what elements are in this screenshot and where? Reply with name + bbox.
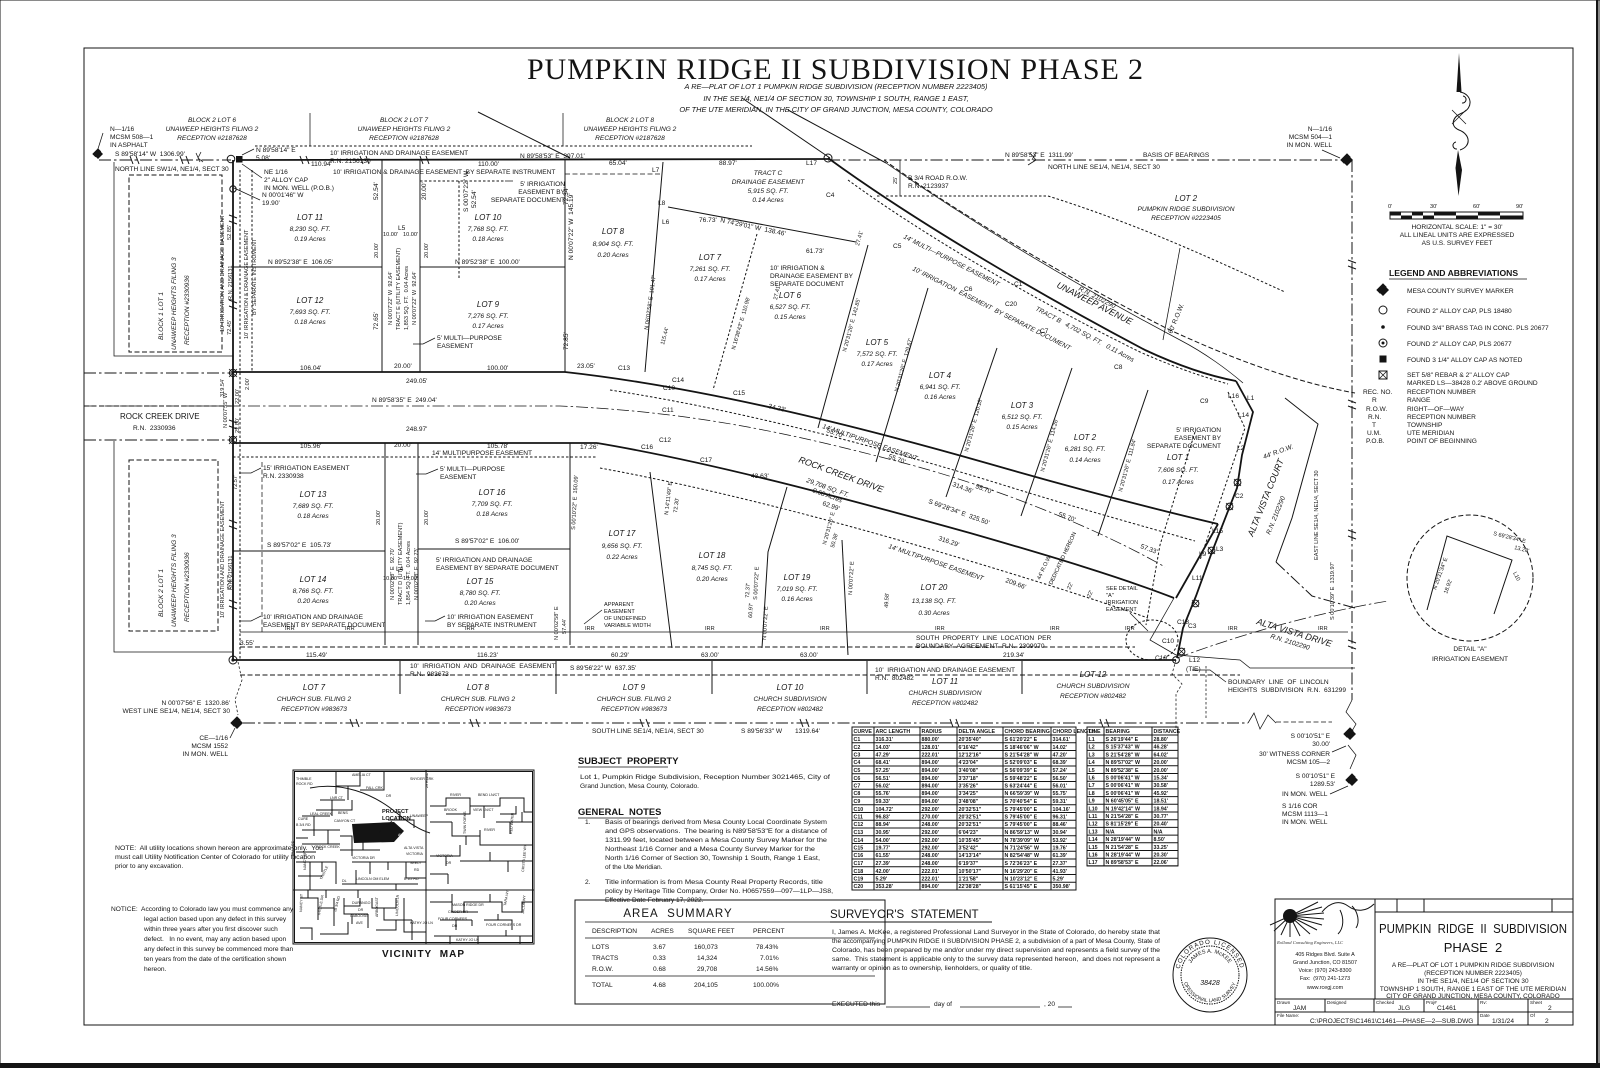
svg-text:C1': C1'	[1014, 281, 1024, 288]
svg-text:RECEPTION #2330936: RECEPTION #2330936	[184, 275, 191, 345]
svg-text:TRACTS: TRACTS	[592, 955, 619, 962]
svg-text:N 60'45'05" E: N 60'45'05" E	[1106, 799, 1139, 805]
svg-text:C9: C9	[1200, 398, 1209, 405]
svg-text:N 00'02'58" E 92.73': N 00'02'58" E 92.73'	[414, 548, 420, 600]
svg-text:SET 5/8" REBAR & 2" ALLOY CAP: SET 5/8" REBAR & 2" ALLOY CAP	[1407, 372, 1510, 379]
svg-text:BOUNDARY AGREEMENT R.N. 230: BOUNDARY AGREEMENT R.N. 2309070	[916, 643, 1045, 650]
svg-text:L8: L8	[658, 200, 666, 207]
svg-text:14' MULTIPURPOSE EASEMENT: 14' MULTIPURPOSE EASEMENT	[821, 423, 919, 463]
svg-text:1311.99 feet, located between: 1311.99 feet, located between a Mesa Cou…	[605, 837, 827, 844]
svg-text:S 00'06'41" W: S 00'06'41" W	[1106, 783, 1140, 789]
svg-text:56.02': 56.02'	[876, 784, 891, 790]
svg-text:222.01': 222.01'	[922, 753, 939, 759]
svg-text:IN MON. WELL: IN MON. WELL	[1282, 791, 1328, 798]
svg-text:L6: L6	[1089, 776, 1095, 782]
svg-text:5' IRRIGATION: 5' IRRIGATION	[520, 181, 565, 188]
svg-text:14'13'14": 14'13'14"	[959, 853, 982, 859]
svg-text:R.N.: R.N.	[1368, 414, 1381, 421]
svg-text:61.55': 61.55'	[876, 853, 891, 859]
svg-text:C4: C4	[826, 192, 835, 199]
svg-text:ALTA V: ALTA V	[398, 833, 410, 837]
svg-text:314.61': 314.61'	[1053, 737, 1070, 743]
svg-text:96.83': 96.83'	[876, 815, 891, 821]
svg-text:S 00'07'22" W: S 00'07'22" W	[463, 170, 470, 212]
svg-text:14' MULTIPURPOSE EASEMENT: 14' MULTIPURPOSE EASEMENT	[887, 543, 985, 583]
svg-text:Rv:: Rv:	[1480, 1000, 1487, 1005]
svg-text:0.30 Acres: 0.30 Acres	[918, 610, 950, 617]
svg-text:LOT 2: LOT 2	[1074, 433, 1097, 442]
svg-text:BLOCK 2 LOT 1: BLOCK 2 LOT 1	[158, 569, 165, 617]
svg-text:LOT 8: LOT 8	[467, 683, 490, 692]
svg-text:0': 0'	[1388, 204, 1392, 210]
svg-text:L5: L5	[1089, 768, 1095, 774]
svg-text:42.00': 42.00'	[876, 869, 891, 875]
svg-text:LOT 8: LOT 8	[602, 227, 625, 236]
svg-text:8,766 SQ. FT.: 8,766 SQ. FT.	[293, 588, 334, 595]
svg-text:RECEPTION #2223405: RECEPTION #2223405	[1151, 215, 1221, 222]
svg-text:10.00': 10.00'	[383, 232, 398, 238]
svg-text:C18: C18	[854, 869, 864, 875]
svg-text:19.77': 19.77'	[876, 846, 891, 852]
svg-text:10.00': 10.00'	[403, 576, 418, 582]
svg-text:legal action based upon any de: legal action based upon any defect in th…	[144, 916, 287, 923]
svg-text:18.92': 18.92'	[1443, 578, 1454, 594]
svg-text:C14: C14	[672, 377, 684, 384]
svg-text:C1461: C1461	[1437, 1005, 1457, 1012]
svg-text:LOT 2: LOT 2	[1175, 194, 1198, 203]
svg-text:CHURCH SUB. FILING 2: CHURCH SUB. FILING 2	[597, 696, 672, 703]
svg-text:S 15'37'43" W: S 15'37'43" W	[1106, 745, 1140, 751]
svg-text:A RE—PLAT OF LOT 1 PUMPKIN RID: A RE—PLAT OF LOT 1 PUMPKIN RIDGE SUBDIVI…	[684, 82, 988, 91]
svg-text:353.28': 353.28'	[876, 884, 893, 890]
svg-text:292.00': 292.00'	[922, 838, 939, 844]
svg-text:2" ALLOY CAP: 2" ALLOY CAP	[264, 177, 309, 184]
svg-text:RIVER: RIVER	[484, 828, 495, 832]
svg-text:59.31': 59.31'	[1053, 799, 1068, 805]
svg-text:L1: L1	[1089, 737, 1095, 743]
svg-text:TOWNSHIP: TOWNSHIP	[1407, 422, 1443, 429]
svg-text:UNAWEEP HEIGHTS FILING 3: UNAWEEP HEIGHTS FILING 3	[171, 534, 178, 627]
svg-text:IRR: IRR	[345, 626, 355, 632]
svg-text:7,709 SQ. FT.: 7,709 SQ. FT.	[472, 501, 513, 508]
svg-text:0.68: 0.68	[653, 966, 666, 973]
svg-text:61.39': 61.39'	[1053, 853, 1068, 859]
svg-text:7.01%: 7.01%	[760, 955, 779, 962]
svg-text:N 78'39'09" W: N 78'39'09" W	[1005, 838, 1039, 844]
svg-text:S 89'56'22" W 637.35': S 89'56'22" W 637.35'	[570, 665, 636, 672]
svg-text:IN THE SE1/4, NE1/4 OF SECTION: IN THE SE1/4, NE1/4 OF SECTION 30	[1417, 978, 1528, 985]
svg-text:N 00'02'58" E: N 00'02'58" E	[554, 606, 560, 640]
svg-text:L10: L10	[1511, 571, 1521, 582]
svg-text:IRR: IRR	[465, 626, 475, 632]
svg-text:IRR: IRR	[1125, 626, 1135, 632]
svg-text:TWIN FORKS: TWIN FORKS	[463, 811, 467, 834]
svg-text:IRR: IRR	[820, 626, 830, 632]
svg-text:S 1/16 COR: S 1/16 COR	[1282, 803, 1318, 810]
svg-text:N 89'58'53" E 1311.99': N 89'58'53" E 1311.99'	[1005, 152, 1073, 159]
svg-text:72.30': 72.30'	[673, 498, 681, 514]
svg-text:N 89'52'38" E: N 89'52'38" E	[1106, 768, 1139, 774]
svg-text:RECEPTION #802482: RECEPTION #802482	[912, 700, 978, 707]
svg-text:N 89'57'02" W: N 89'57'02" W	[1106, 760, 1140, 766]
svg-text:12'12'16": 12'12'16"	[959, 753, 982, 759]
svg-text:110.00': 110.00'	[478, 161, 499, 168]
svg-text:0.18 Acres: 0.18 Acres	[294, 319, 326, 326]
svg-text:3'40'08": 3'40'08"	[959, 768, 979, 774]
svg-text:1'21'58": 1'21'58"	[959, 877, 979, 883]
svg-text:6,941 SQ. FT.: 6,941 SQ. FT.	[920, 384, 961, 391]
svg-text:N 82'54'48" W: N 82'54'48" W	[1005, 853, 1039, 859]
svg-text:S 61'20'22" E: S 61'20'22" E	[1005, 737, 1038, 743]
svg-text:DEDICATED HEREON: DEDICATED HEREON	[1048, 531, 1078, 586]
svg-text:B 1/2 RD: B 1/2 RD	[404, 877, 419, 881]
svg-text:VICTORIA: VICTORIA	[406, 852, 424, 856]
svg-text:SOUTH LINE SE1/4, NE1/4, SECT: SOUTH LINE SE1/4, NE1/4, SECT 30	[592, 728, 704, 735]
svg-text:IN MON. WELL: IN MON. WELL	[1287, 142, 1333, 149]
svg-text:N/A: N/A	[1106, 829, 1115, 835]
svg-text:AREA SUMMARY: AREA SUMMARY	[623, 908, 732, 920]
svg-text:LOT 9: LOT 9	[477, 300, 500, 309]
svg-text:10' IRRIGATION &: 10' IRRIGATION &	[770, 265, 825, 272]
svg-text:27.37': 27.37'	[1053, 861, 1068, 867]
svg-text:L2: L2	[1089, 745, 1095, 751]
svg-text:DL: DL	[342, 879, 347, 883]
svg-text:HEIGHTS SUBDIVISION R.N. 63: HEIGHTS SUBDIVISION R.N. 631299	[1228, 687, 1346, 694]
svg-text:C14: C14	[854, 838, 864, 844]
svg-text:6,281 SQ. FT.: 6,281 SQ. FT.	[1065, 446, 1106, 453]
svg-text:EASEMENT: EASEMENT	[1106, 607, 1137, 613]
svg-text:GENERAL NOTES: GENERAL NOTES	[578, 806, 661, 817]
svg-text:RECEPTION #983673: RECEPTION #983673	[281, 706, 347, 713]
svg-text:C11: C11	[662, 407, 674, 414]
svg-text:C7: C7	[854, 784, 861, 790]
svg-text:MARKED LS—38428 0.2' ABOVE GRO: MARKED LS—38428 0.2' ABOVE GROUND	[1407, 380, 1538, 387]
svg-text:FOUR CORNERS DR: FOUR CORNERS DR	[486, 923, 522, 927]
svg-text:(TIE): (TIE)	[1186, 666, 1201, 673]
svg-text:45.92': 45.92'	[1154, 791, 1169, 797]
svg-text:20.00': 20.00'	[424, 510, 430, 525]
svg-text:www.rcegj.com: www.rcegj.com	[1306, 985, 1344, 991]
svg-text:15' IRRIGATION EASEMENT: 15' IRRIGATION EASEMENT	[263, 465, 350, 472]
svg-text:BEARING: BEARING	[1106, 729, 1130, 735]
svg-text:DELTA ANGLE: DELTA ANGLE	[959, 729, 996, 735]
svg-text:BROOK: BROOK	[444, 808, 458, 812]
svg-text:59.33': 59.33'	[876, 799, 891, 805]
svg-text:20.00': 20.00'	[394, 442, 412, 449]
svg-text:20.00': 20.00'	[1154, 768, 1169, 774]
svg-text:MCSM 1552: MCSM 1552	[191, 743, 228, 750]
svg-text:5' IRRIGATION AND DRAINAGE: 5' IRRIGATION AND DRAINAGE	[436, 557, 533, 564]
svg-text:MESA COUNTY SURVEY MARKER: MESA COUNTY SURVEY MARKER	[1407, 288, 1514, 295]
svg-text:20.00': 20.00'	[374, 243, 380, 258]
svg-text:894.00': 894.00'	[922, 768, 939, 774]
svg-text:0.20 Acres: 0.20 Acres	[464, 600, 496, 607]
svg-text:6,527 SQ. FT.: 6,527 SQ. FT.	[770, 304, 811, 311]
svg-text:N 00'07'22" E: N 00'07'22" E	[762, 606, 770, 640]
svg-text:N 66'59'39" W: N 66'59'39" W	[1005, 791, 1039, 797]
svg-text:55.75': 55.75'	[1053, 791, 1068, 797]
svg-text:ten years from the date of the: ten years from the date of the certifica…	[144, 956, 287, 963]
svg-text:N 06'02'58" E 101.47': N 06'02'58" E 101.47'	[644, 275, 658, 330]
svg-text:Colorado, has been prepared by: Colorado, has been prepared by me and/or…	[832, 947, 1160, 954]
svg-text:47.20': 47.20'	[1053, 753, 1068, 759]
svg-text:68.39': 68.39'	[1053, 760, 1068, 766]
svg-text:30' WITNESS CORNER: 30' WITNESS CORNER	[1259, 751, 1330, 758]
svg-text:B 3/4 RD: B 3/4 RD	[296, 823, 311, 827]
svg-text:0.22 Acres: 0.22 Acres	[606, 554, 638, 561]
svg-text:Of: Of	[1530, 1013, 1536, 1018]
svg-text:FOUR CORNERS: FOUR CORNERS	[438, 917, 468, 921]
svg-text:33.25': 33.25'	[1154, 845, 1169, 851]
svg-text:19.90': 19.90'	[262, 200, 280, 207]
svg-text:EASEMENT BY: EASEMENT BY	[518, 189, 565, 196]
svg-text:LOTS: LOTS	[592, 944, 610, 951]
svg-text:Voice: (970) 243-8300: Voice: (970) 243-8300	[1298, 968, 1351, 974]
svg-text:LINE: LINE	[1089, 729, 1102, 735]
svg-text:North 1/16 Corner of Section 3: North 1/16 Corner of Section 30, Townshi…	[605, 855, 820, 862]
svg-text:5.29': 5.29'	[1053, 877, 1065, 883]
svg-text:55.70': 55.70'	[1057, 511, 1076, 524]
svg-text:C10: C10	[854, 807, 864, 813]
svg-text:29 ROAD: 29 ROAD	[425, 772, 429, 788]
svg-text:N 71'24'56" W: N 71'24'56" W	[1005, 846, 1039, 852]
svg-text:POINT OF BEGINNING: POINT OF BEGINNING	[1407, 438, 1477, 445]
svg-text:L5: L5	[398, 225, 406, 232]
svg-text:, 20: , 20	[1044, 1001, 1055, 1008]
svg-text:R.N. 802482: R.N. 802482	[875, 675, 914, 682]
svg-text:IRR: IRR	[285, 626, 295, 632]
svg-text:S 63'24'44" E: S 63'24'44" E	[1005, 784, 1038, 790]
svg-text:S 00'10'51" E: S 00'10'51" E	[1296, 773, 1336, 780]
svg-text:68.41': 68.41'	[876, 760, 891, 766]
svg-text:34.23': 34.23'	[768, 403, 787, 414]
svg-text:C10: C10	[663, 385, 675, 392]
svg-text:IRR: IRR	[1228, 626, 1238, 632]
svg-text:10' IRRIGATION AND DRAINAGE E: 10' IRRIGATION AND DRAINAGE EASEMENT	[875, 667, 1015, 674]
svg-text:314.36': 314.36'	[951, 481, 974, 495]
svg-text:CABOOSE: CABOOSE	[350, 914, 368, 918]
svg-text:104.16': 104.16'	[1053, 807, 1070, 813]
svg-text:DR: DR	[358, 908, 364, 912]
svg-text:N 89'58'53" E: N 89'58'53" E	[1106, 860, 1139, 866]
svg-text:350.98': 350.98'	[1053, 884, 1070, 890]
svg-text:L17: L17	[806, 160, 817, 167]
svg-text:L13: L13	[1089, 829, 1098, 835]
svg-text:PUMPKIN RIDGE II SUBDIVISIO: PUMPKIN RIDGE II SUBDIVISION	[1379, 921, 1567, 936]
svg-text:N 00'07'22" E: N 00'07'22" E	[848, 561, 856, 595]
svg-text:LOT 16: LOT 16	[479, 488, 506, 497]
svg-text:DISTANCE: DISTANCE	[1154, 729, 1181, 735]
svg-text:0.14 Acres: 0.14 Acres	[752, 197, 784, 204]
svg-text:LOT 13: LOT 13	[300, 490, 327, 499]
svg-text:NOTICE: According to Colorado: NOTICE: According to Colorado law you mu…	[111, 906, 294, 913]
svg-text:LOT 12: LOT 12	[1080, 670, 1107, 679]
svg-text:N 20'31'26" E 114.26': N 20'31'26" E 114.26'	[1040, 418, 1060, 472]
svg-text:ACRES: ACRES	[651, 928, 674, 935]
svg-text:S 18'46'06" W: S 18'46'06" W	[1005, 745, 1039, 751]
svg-text:C19: C19	[1155, 655, 1167, 662]
svg-text:Basis of bearings derived from: Basis of bearings derived from Mesa Coun…	[605, 819, 828, 826]
svg-text:NANCY ST: NANCY ST	[299, 893, 304, 912]
svg-text:7,572 SQ. FT.: 7,572 SQ. FT.	[857, 351, 898, 358]
svg-text:6,512 SQ. FT.: 6,512 SQ. FT.	[1002, 414, 1043, 421]
svg-text:CINDER DR: CINDER DR	[448, 910, 468, 914]
svg-text:C19: C19	[854, 877, 864, 883]
svg-text:8.50': 8.50'	[1154, 837, 1166, 843]
svg-text:1/31/24: 1/31/24	[1492, 1018, 1514, 1025]
svg-text:T: T	[1372, 422, 1376, 429]
svg-text:ALTA VISTA: ALTA VISTA	[404, 846, 424, 850]
svg-text:LOT 19: LOT 19	[784, 573, 811, 582]
svg-text:UTE MERIDIAN: UTE MERIDIAN	[1407, 430, 1454, 437]
svg-text:RANGE: RANGE	[1407, 397, 1431, 404]
svg-text:5' MULTI—PURPOSE: 5' MULTI—PURPOSE	[440, 466, 505, 473]
svg-text:Sheet: Sheet	[1530, 1000, 1543, 1005]
svg-text:405 Ridges Blvd. Suite A: 405 Ridges Blvd. Suite A	[1295, 952, 1355, 958]
svg-text:S 81'15'29" E: S 81'15'29" E	[1106, 822, 1139, 828]
svg-text:7,689 SQ. FT.: 7,689 SQ. FT.	[293, 503, 334, 510]
svg-text:N/A: N/A	[1154, 829, 1163, 835]
svg-text:55.70': 55.70'	[974, 483, 993, 496]
svg-text:57.24': 57.24'	[1053, 768, 1068, 774]
svg-text:20.40': 20.40'	[1154, 822, 1169, 828]
svg-text:Rolland Consulting Engineers,: Rolland Consulting Engineers, LLC	[1276, 940, 1344, 946]
svg-text:894.00': 894.00'	[922, 760, 939, 766]
svg-text:72.85': 72.85'	[563, 332, 570, 350]
svg-text:MCSM 105—2: MCSM 105—2	[1287, 759, 1331, 766]
svg-text:22.00': 22.00'	[235, 418, 241, 433]
svg-text:30.00': 30.00'	[1312, 741, 1330, 748]
svg-text:8,745 SQ. FT.: 8,745 SQ. FT.	[692, 565, 733, 572]
svg-text:S 00'10'39" E 1319.97': S 00'10'39" E 1319.97'	[1330, 562, 1336, 620]
svg-text:S 21'54'28" W: S 21'54'28" W	[1106, 752, 1140, 758]
svg-text:60' R.O.W.: 60' R.O.W.	[1167, 303, 1185, 335]
svg-text:IN MON. WELL (P.O.B.): IN MON. WELL (P.O.B.)	[264, 185, 334, 192]
svg-text:hereon.: hereon.	[144, 966, 167, 973]
svg-text:L4: L4	[1089, 760, 1095, 766]
svg-text:RECEPTION #983673: RECEPTION #983673	[445, 706, 511, 713]
svg-text:20.00': 20.00'	[424, 243, 430, 258]
svg-text:S 69'28'34" E 325.50': S 69'28'34" E 325.50'	[927, 498, 990, 527]
svg-text:894.00': 894.00'	[922, 791, 939, 797]
svg-text:TRACT D (UTILITY EASEMENT): TRACT D (UTILITY EASEMENT)	[398, 522, 404, 605]
svg-text:C9: C9	[854, 799, 861, 805]
svg-text:C2: C2	[854, 745, 861, 751]
svg-text:LNR CT: LNR CT	[330, 796, 344, 800]
svg-text:RECEPTION NUMBER: RECEPTION NUMBER	[1407, 389, 1476, 396]
svg-text:60': 60'	[1473, 204, 1480, 210]
svg-text:AS U.S. SURVEY FEET: AS U.S. SURVEY FEET	[1422, 240, 1493, 247]
svg-text:1,853 SQ. FT. 0.04 Acres: 1,853 SQ. FT. 0.04 Acres	[404, 266, 410, 330]
svg-text:C12: C12	[659, 437, 671, 444]
svg-text:EXECUTED this: EXECUTED this	[832, 1001, 881, 1008]
svg-text:S 79'45'00" E: S 79'45'00" E	[1005, 822, 1038, 828]
svg-text:LINCOLN OM ELEM: LINCOLN OM ELEM	[356, 877, 389, 881]
svg-text:N 20'31'26" E 129.67': N 20'31'26" E 129.67'	[894, 338, 914, 393]
svg-text:RIGHT—OF—WAY: RIGHT—OF—WAY	[1407, 406, 1465, 413]
svg-text:TRACT C: TRACT C	[754, 170, 783, 177]
svg-text:0.20 Acres: 0.20 Acres	[597, 252, 629, 259]
svg-text:LEAL CREEK: LEAL CREEK	[310, 812, 333, 816]
svg-text:38428: 38428	[1200, 980, 1220, 987]
svg-text:88.46': 88.46'	[1053, 822, 1068, 828]
svg-text:10.00': 10.00'	[383, 576, 398, 582]
svg-text:90': 90'	[1516, 204, 1523, 210]
svg-text:Grand Junction, CO 81507: Grand Junction, CO 81507	[1293, 960, 1357, 966]
svg-text:BLOCK 2 LOT 8: BLOCK 2 LOT 8	[606, 117, 654, 124]
svg-text:S 70'40'54" E: S 70'40'54" E	[1005, 799, 1038, 805]
svg-text:N 89'52'38" E 106.05': N 89'52'38" E 106.05'	[268, 259, 333, 266]
svg-text:C15: C15	[854, 846, 864, 852]
svg-text:R: R	[1372, 397, 1377, 404]
svg-text:CHURCH SUBDIVISION: CHURCH SUBDIVISION	[754, 696, 827, 703]
svg-text:the accompanying PUMPKIN RIDGE: the accompanying PUMPKIN RIDGE II SUBDIV…	[832, 938, 1160, 945]
svg-text:0.17 Acres: 0.17 Acres	[861, 361, 893, 368]
svg-text:0.19 Acres: 0.19 Acres	[294, 236, 326, 243]
svg-text:53.92': 53.92'	[1053, 838, 1068, 844]
svg-text:L16: L16	[1089, 853, 1098, 859]
svg-text:248.00': 248.00'	[922, 853, 939, 859]
svg-text:P.O.B.: P.O.B.	[1366, 438, 1385, 445]
svg-text:894.00': 894.00'	[922, 799, 939, 805]
svg-text:8,230 SQ. FT.: 8,230 SQ. FT.	[290, 226, 331, 233]
svg-text:292.00': 292.00'	[922, 807, 939, 813]
svg-text:3'34'25": 3'34'25"	[959, 791, 979, 797]
svg-text:FOUND 3 1/4" ALLOY CAP AS NOTE: FOUND 3 1/4" ALLOY CAP AS NOTED	[1407, 357, 1523, 364]
svg-text:30.58': 30.58'	[1154, 783, 1169, 789]
svg-text:JACOB WY: JACOB WY	[521, 894, 527, 914]
svg-text:defect. In no event, may any: defect. In no event, may any action base…	[144, 936, 287, 943]
svg-text:IRR: IRR	[1050, 626, 1060, 632]
svg-text:SEPARATE DOCUMENT: SEPARATE DOCUMENT	[491, 197, 565, 204]
svg-text:27.41': 27.41'	[855, 230, 865, 246]
svg-text:RECEPTION #2187628: RECEPTION #2187628	[369, 135, 439, 142]
svg-text:must call Utility Notification: must call Utility Notification Center of…	[115, 854, 315, 861]
svg-text:IN MON. WELL: IN MON. WELL	[1282, 819, 1328, 826]
svg-text:20.00': 20.00'	[421, 182, 428, 200]
svg-text:CHORD BEARING: CHORD BEARING	[1005, 729, 1050, 735]
svg-text:UNAWEEP HEIGHTS FILING 2: UNAWEEP HEIGHTS FILING 2	[584, 126, 677, 133]
svg-text:EAST LINE SE1/4, NE1/4, SECT 3: EAST LINE SE1/4, NE1/4, SECT 30	[1314, 470, 1320, 560]
svg-text:CHURCH SUBDIVISION: CHURCH SUBDIVISION	[909, 690, 982, 697]
svg-text:248.00': 248.00'	[922, 861, 939, 867]
svg-text:50.38': 50.38'	[830, 532, 840, 548]
svg-text:10' IRRIGATION AND DRAINAGE: 10' IRRIGATION AND DRAINAGE	[263, 614, 364, 621]
svg-text:56.51': 56.51'	[876, 776, 891, 782]
svg-text:OF THE UTE MERIDIAN, IN THE CI: OF THE UTE MERIDIAN, IN THE CITY OF GRAN…	[679, 105, 992, 114]
svg-text:THIMBLE: THIMBLE	[296, 777, 312, 781]
svg-text:FOUND 3/4" BRASS TAG IN CONC.: FOUND 3/4" BRASS TAG IN CONC. PLS 20677	[1407, 325, 1549, 332]
svg-text:N 89'52'38" E 100.00': N 89'52'38" E 100.00'	[455, 259, 520, 266]
svg-text:S 21'54'28" W: S 21'54'28" W	[1005, 753, 1039, 759]
svg-text:N 89'58'35" E 249.04': N 89'58'35" E 249.04'	[372, 397, 437, 404]
svg-text:3.55': 3.55'	[240, 640, 254, 647]
svg-text:63.00': 63.00'	[800, 652, 818, 659]
svg-text:L17: L17	[1089, 860, 1098, 866]
svg-text:LOCATION: LOCATION	[382, 816, 411, 822]
svg-text:CE—1/16: CE—1/16	[199, 735, 228, 742]
svg-text:0.20 Acres: 0.20 Acres	[696, 576, 728, 583]
svg-text:SQUARE FEET: SQUARE FEET	[688, 928, 735, 935]
svg-text:3'48'08": 3'48'08"	[959, 799, 979, 805]
svg-text:C8: C8	[854, 791, 861, 797]
svg-text:Fax: (970) 241-1273: Fax: (970) 241-1273	[1300, 976, 1350, 982]
svg-text:72.45': 72.45'	[227, 320, 233, 335]
svg-text:Designed: Designed	[1327, 1000, 1347, 1005]
svg-text:C10: C10	[1162, 638, 1174, 645]
svg-text:prior to any excavation.: prior to any excavation.	[115, 863, 183, 870]
svg-text:C4: C4	[854, 760, 861, 766]
